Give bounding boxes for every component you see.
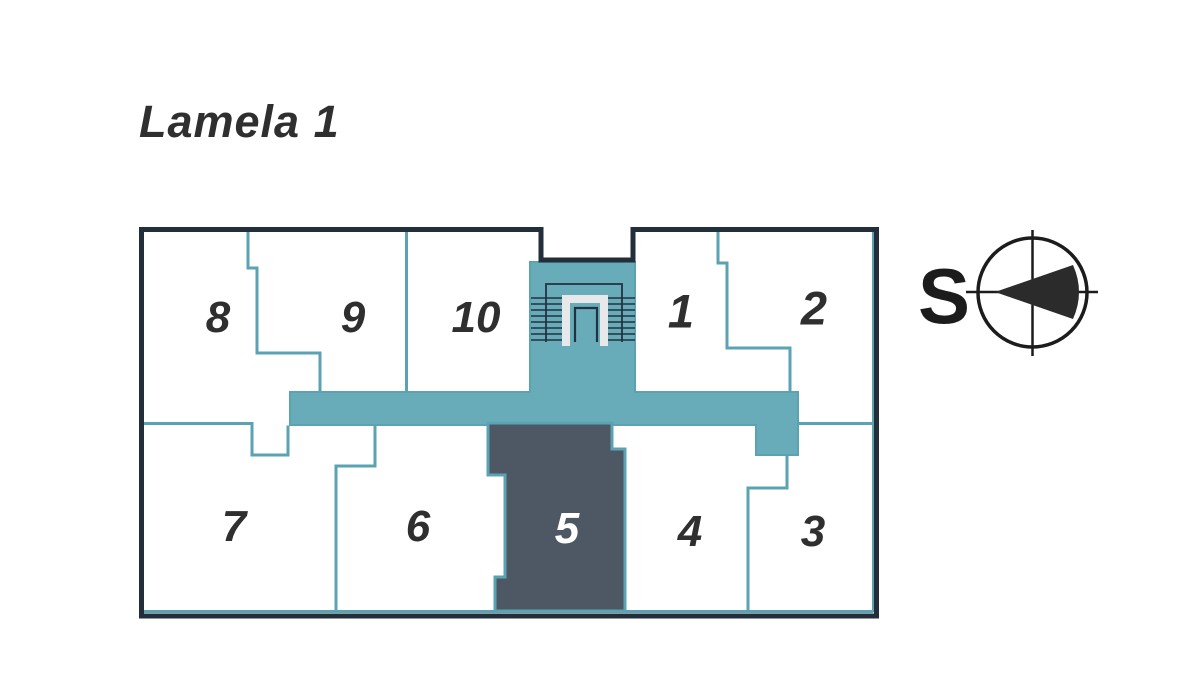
unit-label-5-selected[interactable]: 5 xyxy=(555,507,579,551)
unit-label-3[interactable]: 3 xyxy=(801,510,825,554)
unit-label-4[interactable]: 4 xyxy=(678,510,702,554)
unit-label-7[interactable]: 7 xyxy=(222,505,246,549)
floorplan-page: Lamela 1 xyxy=(0,0,1201,700)
wall-1-2 xyxy=(718,231,790,392)
compass-south-label: S xyxy=(918,257,970,335)
unit-label-1[interactable]: 1 xyxy=(668,288,694,335)
wall-8-7 xyxy=(141,424,288,456)
compass-needle xyxy=(995,265,1079,319)
wall-7-6 xyxy=(336,425,375,611)
compass-icon xyxy=(966,230,1098,356)
unit-label-8[interactable]: 8 xyxy=(206,296,230,340)
unit-label-10[interactable]: 10 xyxy=(452,296,501,340)
wall-8-9 xyxy=(248,231,320,392)
unit-label-9[interactable]: 9 xyxy=(341,296,365,340)
unit-label-2[interactable]: 2 xyxy=(801,285,827,332)
floorplan-drawing xyxy=(0,0,1201,700)
unit-label-6[interactable]: 6 xyxy=(406,505,430,549)
wall-4-3 xyxy=(748,455,787,611)
